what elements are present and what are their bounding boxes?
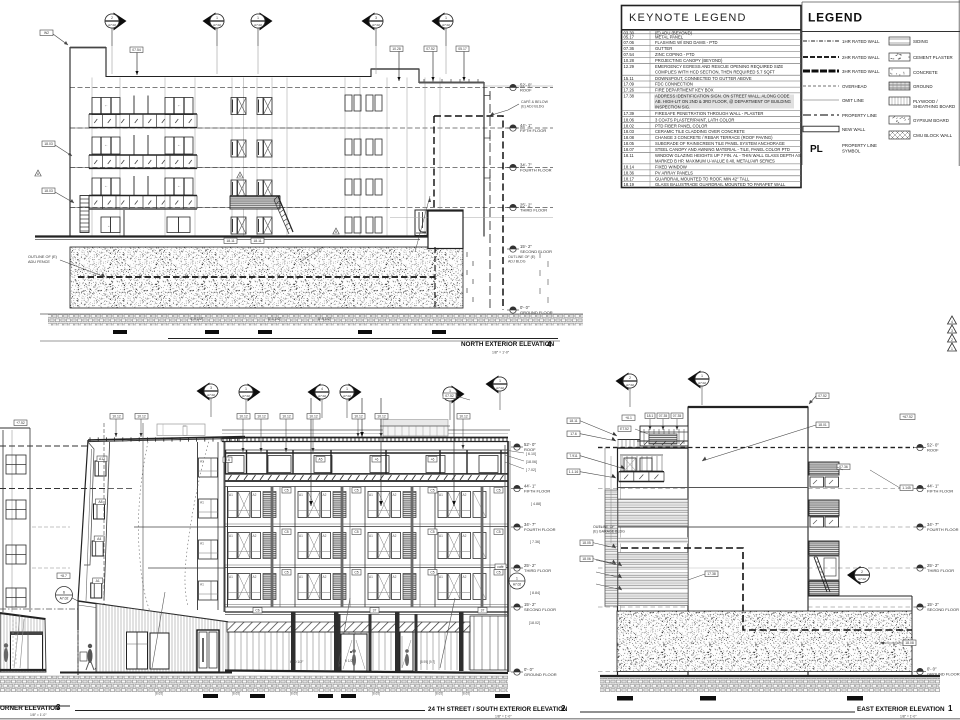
svg-text:A1: A1	[200, 583, 204, 587]
svg-text:SIDING: SIDING	[913, 39, 929, 44]
svg-text:18.19: 18.19	[624, 182, 635, 187]
svg-text:[8.65]: [8.65]	[290, 692, 298, 696]
svg-text:W2: W2	[44, 31, 49, 35]
svg-text:18.36: 18.36	[624, 171, 635, 176]
svg-text:4: 4	[951, 320, 953, 324]
svg-text:WINDOW GLAZING HEIGHTS UP 7 FI: WINDOW GLAZING HEIGHTS UP 7 FIN. AL - TH…	[655, 153, 801, 158]
svg-text:10.28: 10.28	[392, 47, 401, 51]
svg-text:A4: A4	[97, 537, 101, 541]
svg-text:A2: A2	[253, 493, 257, 497]
svg-text:A1: A1	[299, 575, 303, 579]
svg-text:A8: A8	[98, 500, 102, 504]
svg-text:3: 3	[375, 16, 377, 20]
svg-text:2: 2	[629, 376, 631, 380]
svg-text:A5: A5	[318, 458, 322, 462]
svg-text:+7.52: +7.52	[16, 421, 25, 425]
svg-text:[8.65]: [8.65]	[462, 692, 470, 696]
svg-text:C6: C6	[255, 609, 259, 613]
svg-text:07.52: 07.52	[818, 394, 827, 398]
svg-text:GUARDRAIL MOUNTED TO ROOF, MIN: GUARDRAIL MOUNTED TO ROOF, MIN 42″ TALL	[655, 176, 750, 181]
svg-text:ET.52: ET.52	[620, 427, 629, 431]
svg-text:37: 37	[481, 609, 485, 613]
svg-text:C5: C5	[496, 571, 500, 575]
svg-text:←: ←	[177, 142, 181, 147]
svg-text:6′- 9 1/2″: 6′- 9 1/2″	[290, 660, 304, 664]
svg-text:4′-9 1/2″: 4′-9 1/2″	[190, 317, 204, 321]
svg-text:18.03: 18.03	[44, 189, 53, 193]
svg-text:FOURTH FLOOR: FOURTH FLOOR	[927, 527, 959, 532]
svg-text:ZINC COPING - PTD: ZINC COPING - PTD	[655, 52, 695, 57]
svg-text:18.17: 18.17	[624, 176, 635, 181]
svg-text:[18.02]: [18.02]	[529, 621, 540, 625]
svg-text:FIFTH FLOOR: FIFTH FLOOR	[520, 128, 546, 133]
svg-text:1/8″ = 1′-0″: 1/8″ = 1′-0″	[900, 715, 917, 719]
svg-text:18.11: 18.11	[569, 419, 577, 423]
svg-text:2HR RATED WALL: 2HR RATED WALL	[842, 55, 880, 60]
svg-text:18.14: 18.14	[624, 165, 635, 170]
svg-text:A1: A1	[200, 542, 204, 546]
svg-text:[8.95] [9.7]: [8.95] [9.7]	[420, 660, 435, 664]
svg-text:18.06: 18.06	[582, 557, 591, 561]
svg-text:1: 1	[257, 16, 259, 20]
svg-text:10.12: 10.12	[239, 415, 248, 419]
svg-text:[ 7.36]: [ 7.36]	[530, 540, 540, 544]
svg-text:A7.02: A7.02	[242, 394, 250, 398]
svg-text:+6.1: +6.1	[625, 416, 632, 420]
svg-text:18.08: 18.08	[905, 641, 914, 645]
svg-text:PV ARRAY PANELS: PV ARRAY PANELS	[655, 171, 693, 176]
svg-text:FIXED WINDOW: FIXED WINDOW	[655, 165, 687, 170]
svg-text:1: 1	[951, 347, 953, 351]
svg-text:[ 7.02]: [ 7.02]	[526, 468, 536, 472]
svg-text:METAL PANEL: METAL PANEL	[655, 34, 684, 39]
svg-text:OUTLINE OF: OUTLINE OF	[593, 525, 615, 529]
svg-text:GROUND FLOOR: GROUND FLOOR	[524, 672, 557, 677]
svg-text:A1: A1	[299, 534, 303, 538]
svg-text:3 COATS PLASTER/PAINT, LATH CO: 3 COATS PLASTER/PAINT, LATH COLOR	[655, 117, 734, 122]
svg-text:07.52: 07.52	[426, 47, 435, 51]
svg-text:ADJ BLDG: ADJ BLDG	[508, 260, 526, 264]
svg-text:A2: A2	[253, 575, 257, 579]
svg-text:A1: A1	[96, 579, 100, 583]
svg-text:FIRESAFE PENETRATION THROUGH W: FIRESAFE PENETRATION THROUGH WALL - PLAS…	[655, 111, 763, 116]
svg-text:A1: A1	[229, 575, 233, 579]
svg-text:A1: A1	[229, 493, 233, 497]
svg-text:PROPERTY LINE: PROPERTY LINE	[842, 143, 877, 148]
svg-text:CAFÉ & BELOW: CAFÉ & BELOW	[521, 99, 549, 104]
svg-text:LEGEND: LEGEND	[808, 11, 863, 25]
svg-text:18.06: 18.06	[624, 117, 635, 122]
svg-text:ROOF: ROOF	[927, 448, 939, 453]
svg-text:10.12: 10.12	[282, 415, 291, 419]
svg-text:2: 2	[561, 704, 566, 713]
svg-text:GLASS BALUSTRADE GUARDRAIL MOU: GLASS BALUSTRADE GUARDRAIL MOUNTED TO PA…	[655, 182, 786, 187]
svg-text:1: 1	[948, 704, 953, 713]
svg-text:A1: A1	[229, 534, 233, 538]
svg-text:C5: C5	[430, 530, 434, 534]
svg-text:GROUND FLOOR: GROUND FLOOR	[520, 310, 553, 315]
svg-text:A7.02: A7.02	[698, 381, 706, 385]
svg-text:C5: C5	[284, 571, 288, 575]
svg-text:CMU BLOCK WALL: CMU BLOCK WALL	[913, 133, 953, 138]
svg-text:A7.02: A7.02	[626, 383, 634, 387]
svg-text:A1: A1	[369, 575, 373, 579]
svg-text:A7.02: A7.02	[343, 394, 351, 398]
svg-text:1/8″ = 1′-0″: 1/8″ = 1′-0″	[30, 713, 47, 717]
svg-text:OVERHEAD: OVERHEAD	[842, 84, 867, 89]
svg-text:17.38: 17.38	[707, 572, 716, 576]
svg-text:COMPLIES WITH HCD SECTION, THE: COMPLIES WITH HCD SECTION, THEN REQUIRED…	[655, 70, 775, 75]
svg-text:07.06: 07.06	[624, 40, 635, 45]
svg-text:←: ←	[107, 223, 111, 228]
svg-text:3: 3	[951, 329, 953, 333]
svg-text:C5: C5	[284, 489, 288, 493]
svg-text:SHEATHING BOARD: SHEATHING BOARD	[913, 104, 955, 109]
svg-text:C5: C5	[354, 571, 358, 575]
svg-text:A2: A2	[463, 575, 467, 579]
svg-text:C5: C5	[430, 571, 434, 575]
svg-text:[8.65]: [8.65]	[232, 692, 240, 696]
svg-text:10.28: 10.28	[624, 58, 635, 63]
svg-text:6: 6	[63, 591, 65, 595]
svg-text:18.08: 18.08	[624, 135, 635, 140]
svg-text:PLYWOOD /: PLYWOOD /	[913, 99, 938, 104]
svg-text:C5: C5	[496, 489, 500, 493]
svg-text:OUTLINE OF (E): OUTLINE OF (E)	[508, 255, 535, 259]
svg-text:3: 3	[56, 703, 61, 712]
svg-text:18.02: 18.02	[624, 123, 635, 128]
svg-text:1: 1	[449, 389, 451, 393]
svg-text:PTD FIBER PANEL COLOR: PTD FIBER PANEL COLOR	[655, 123, 707, 128]
svg-text:OUTLINE OF (E): OUTLINE OF (E)	[28, 255, 58, 259]
svg-text:1: 1	[701, 374, 703, 378]
svg-text:FIFTH FLOOR: FIFTH FLOOR	[524, 489, 550, 494]
svg-text:1: 1	[245, 387, 247, 391]
svg-text:[18.06]: [18.06]	[526, 460, 537, 464]
svg-text:INSPECTION SIG.: INSPECTION SIG.	[655, 105, 690, 110]
svg-text:A1: A1	[439, 575, 443, 579]
svg-text:A2: A2	[393, 493, 397, 497]
svg-text:A7.02: A7.02	[496, 386, 504, 390]
svg-text:10.12: 10.12	[459, 415, 468, 419]
svg-text:1: 1	[216, 16, 218, 20]
svg-text:[ 4.88]: [ 4.88]	[531, 502, 541, 506]
svg-text:A1: A1	[299, 493, 303, 497]
svg-text:A7.02: A7.02	[318, 394, 326, 398]
svg-text:18.03: 18.03	[624, 129, 635, 134]
svg-text:A7.02: A7.02	[372, 23, 380, 27]
svg-text:24 TH STREET / SOUTH EXTERIOR: 24 TH STREET / SOUTH EXTERIOR ELEVATION	[428, 706, 568, 713]
svg-text:10.12: 10.12	[257, 415, 266, 419]
svg-text:07.54: 07.54	[132, 48, 141, 52]
svg-text:05.17: 05.17	[458, 47, 467, 51]
svg-text:15.11: 15.11	[624, 76, 635, 81]
svg-text:07.54: 07.54	[624, 52, 635, 57]
svg-text:18.1: 18.1	[647, 414, 654, 418]
svg-text:1.1.16: 1.1.16	[569, 470, 579, 474]
svg-text:ADU FENCE: ADU FENCE	[28, 260, 50, 264]
svg-text:SUBGRADE OF RAINSCREEN TILE PA: SUBGRADE OF RAINSCREEN TILE PANEL SYSTEM…	[655, 141, 785, 146]
svg-text:MARKED B HP, MAXIMUM U-VALUE 0: MARKED B HP, MAXIMUM U-VALUE 0.40, METAL…	[655, 159, 775, 164]
svg-text:FIFTH FLOOR: FIFTH FLOOR	[927, 489, 953, 494]
svg-text:17.6: 17.6	[570, 432, 577, 436]
svg-text:2: 2	[861, 570, 863, 574]
svg-text:A2: A2	[323, 575, 327, 579]
svg-text:C5: C5	[496, 530, 500, 534]
svg-text:[ 8.84]: [ 8.84]	[530, 591, 540, 595]
svg-text:ADDRESS IDENTIFICATION SIGN. O: ADDRESS IDENTIFICATION SIGN. ON STREET W…	[655, 94, 790, 99]
svg-text:1HR RATED WALL: 1HR RATED WALL	[842, 39, 880, 44]
svg-text:4: 4	[547, 340, 552, 349]
svg-text:07.35: 07.35	[659, 414, 668, 418]
svg-text:A1: A1	[439, 534, 443, 538]
svg-text:4′- 1″: 4′- 1″	[630, 662, 638, 666]
svg-text:18.07: 18.07	[624, 147, 635, 152]
svg-text:(E) ADJ BLDG: (E) ADJ BLDG	[521, 105, 544, 109]
svg-text:FDC CONNECTION: FDC CONNECTION	[655, 82, 693, 87]
svg-text:7.911: 7.911	[569, 454, 577, 458]
svg-text:FOURTH FLOOR: FOURTH FLOOR	[520, 168, 552, 173]
svg-text:12.29: 12.29	[624, 64, 635, 69]
svg-text:+6: +6	[431, 458, 435, 462]
svg-text:⌀: ⌀	[660, 663, 662, 667]
svg-text:18.11: 18.11	[226, 239, 234, 243]
svg-text:5′-1 1/2″: 5′-1 1/2″	[268, 317, 282, 321]
svg-text:GYPSUM BOARD: GYPSUM BOARD	[913, 118, 949, 123]
svg-text:A2: A2	[253, 534, 257, 538]
svg-text:C5: C5	[354, 530, 358, 534]
svg-text:+6: +6	[375, 458, 379, 462]
svg-text:1: 1	[516, 577, 518, 581]
svg-text:SYMBOL: SYMBOL	[842, 149, 861, 154]
svg-text:1/8″ = 1′-0″: 1/8″ = 1′-0″	[492, 351, 510, 355]
svg-text:SECOND FLOOR: SECOND FLOOR	[927, 607, 959, 612]
svg-text:3: 3	[210, 386, 212, 390]
svg-text:OMIT LINE: OMIT LINE	[842, 98, 864, 103]
svg-text:THIRD FLOOR: THIRD FLOOR	[520, 208, 547, 213]
svg-text:07.52: 07.52	[445, 394, 454, 398]
svg-text:17.09: 17.09	[624, 82, 635, 87]
svg-text:SECOND FLOOR: SECOND FLOOR	[524, 607, 556, 612]
svg-text:[8.65]: [8.65]	[155, 692, 163, 696]
svg-text:C5: C5	[354, 489, 358, 493]
svg-text:10.12: 10.12	[377, 415, 386, 419]
svg-text:NEW WALL: NEW WALL	[842, 127, 866, 132]
svg-text:10.12: 10.12	[354, 415, 363, 419]
svg-text:THIRD FLOOR: THIRD FLOOR	[524, 568, 551, 573]
svg-text:6′-9 1/2″: 6′-9 1/2″	[318, 317, 332, 321]
svg-text:A1: A1	[369, 493, 373, 497]
svg-text:A7.02: A7.02	[60, 597, 69, 601]
svg-text:café: café	[497, 565, 504, 569]
svg-text:NORTH EXTERIOR ELEVATION: NORTH EXTERIOR ELEVATION	[461, 341, 555, 348]
svg-text:9 1/2″: 9 1/2″	[345, 659, 355, 663]
svg-text:DOWNSPOUT, CONNECTED TO GUTTER: DOWNSPOUT, CONNECTED TO GUTTER ABOVE	[655, 76, 752, 81]
svg-text:GUTTER: GUTTER	[655, 46, 672, 51]
svg-text:A7.02: A7.02	[442, 23, 450, 27]
svg-text:10.12: 10.12	[309, 415, 318, 419]
svg-text:FIRE DEPARTMENT KEY BOX: FIRE DEPARTMENT KEY BOX	[655, 88, 714, 93]
svg-text:18.11: 18.11	[624, 153, 635, 158]
svg-text:AB. HIGH-LIT ON 2ND & 3RD FLOO: AB. HIGH-LIT ON 2ND & 3RD FLOOR, @ DEPAR…	[655, 99, 791, 104]
svg-text:17.38: 17.38	[624, 94, 635, 99]
svg-text:FLASHING W/ END DAMS - PTD: FLASHING W/ END DAMS - PTD	[655, 40, 718, 45]
svg-text:A1: A1	[369, 534, 373, 538]
svg-text:37: 37	[373, 609, 377, 613]
svg-text:A2: A2	[323, 534, 327, 538]
svg-text:EAST EXTERIOR ELEVATION: EAST EXTERIOR ELEVATION	[857, 706, 945, 713]
svg-text:2: 2	[951, 338, 953, 342]
svg-text:←: ←	[104, 183, 108, 188]
svg-text:A7.02: A7.02	[254, 23, 262, 27]
svg-text:CONCRETE: CONCRETE	[913, 70, 938, 75]
svg-text:GROUND: GROUND	[913, 84, 933, 89]
svg-text:18.01: 18.01	[818, 423, 827, 427]
svg-text:18.05: 18.05	[582, 541, 591, 545]
svg-text:STEEL CANOPY AND AWNING MATERI: STEEL CANOPY AND AWNING MATERIAL - TILE,…	[655, 147, 790, 152]
svg-text:07.35: 07.35	[673, 414, 682, 418]
svg-text:05.17: 05.17	[624, 34, 635, 39]
svg-text:1.145: 1.145	[902, 486, 911, 490]
svg-text:EMERGENCY EGRESS AND RESCUE OP: EMERGENCY EGRESS AND RESCUE OPENING REQU…	[655, 64, 783, 69]
svg-text:←: ←	[177, 183, 181, 188]
svg-text:A2: A2	[463, 493, 467, 497]
svg-text:PROJECTING CANOPY (BEYOND): PROJECTING CANOPY (BEYOND)	[655, 58, 723, 63]
svg-text:10.12: 10.12	[137, 415, 146, 419]
svg-text:PROPERTY LINE: PROPERTY LINE	[842, 113, 877, 118]
svg-text:PL: PL	[810, 144, 823, 155]
svg-text:07.36: 07.36	[624, 46, 635, 51]
svg-text:18.11: 18.11	[253, 239, 261, 243]
svg-text:A1: A1	[200, 501, 204, 505]
svg-text:C5: C5	[430, 489, 434, 493]
svg-text:←: ←	[104, 142, 108, 147]
svg-text:3HR RATED WALL: 3HR RATED WALL	[842, 69, 880, 74]
svg-text:A7.02: A7.02	[213, 23, 221, 27]
svg-text:C5: C5	[284, 530, 288, 534]
svg-text:17.26: 17.26	[624, 88, 635, 93]
svg-text:1/8″ = 1′-0″: 1/8″ = 1′-0″	[495, 715, 512, 719]
svg-text:FOURTH FLOOR: FOURTH FLOOR	[524, 527, 556, 532]
svg-text:A7.02: A7.02	[513, 583, 522, 587]
svg-text:18.03: 18.03	[44, 142, 53, 146]
svg-text:A2: A2	[393, 575, 397, 579]
svg-text:A7.02: A7.02	[108, 23, 116, 27]
svg-text:[8.65]: [8.65]	[435, 692, 443, 696]
svg-text:A2: A2	[393, 534, 397, 538]
svg-text:[8.65]: [8.65]	[372, 692, 380, 696]
svg-text:17.39: 17.39	[624, 111, 635, 116]
svg-text:A1: A1	[439, 493, 443, 497]
svg-text:←: ←	[177, 103, 181, 108]
svg-text:2: 2	[111, 16, 113, 20]
svg-text:ROOF: ROOF	[520, 88, 532, 93]
svg-text:+67.52: +67.52	[902, 415, 913, 419]
svg-text:1: 1	[346, 387, 348, 391]
svg-text:(E) GARAGE BLDG: (E) GARAGE BLDG	[593, 530, 625, 534]
svg-text:←: ←	[104, 103, 108, 108]
svg-text:A7.02: A7.02	[207, 393, 215, 397]
svg-text:4: 4	[321, 387, 323, 391]
svg-text:CHANGE 3 CONCRETE / REBAR TERR: CHANGE 3 CONCRETE / REBAR TERRACE (ROOF …	[655, 135, 773, 140]
svg-text:THIRD FLOOR: THIRD FLOOR	[927, 568, 954, 573]
svg-text:[ 6.10]: [ 6.10]	[526, 452, 536, 456]
svg-text:1: 1	[499, 379, 501, 383]
svg-text:ORNER ELEVATION: ORNER ELEVATION	[0, 705, 60, 712]
svg-text:KEYNOTE LEGEND: KEYNOTE LEGEND	[629, 12, 747, 24]
svg-text:+8.7: +8.7	[60, 574, 67, 578]
svg-text:SECOND FLOOR: SECOND FLOOR	[520, 249, 552, 254]
svg-text:18.05: 18.05	[624, 141, 635, 146]
svg-text:A2: A2	[463, 534, 467, 538]
svg-text:10.12: 10.12	[112, 415, 121, 419]
svg-text:CERAMIC TILE CLADDING OVER CON: CERAMIC TILE CLADDING OVER CONCRETE	[655, 129, 745, 134]
svg-text:A2: A2	[323, 493, 327, 497]
svg-text:A7.02: A7.02	[858, 577, 866, 581]
svg-text:CEMENT PLASTER: CEMENT PLASTER	[913, 55, 953, 60]
svg-text:1: 1	[445, 16, 447, 20]
